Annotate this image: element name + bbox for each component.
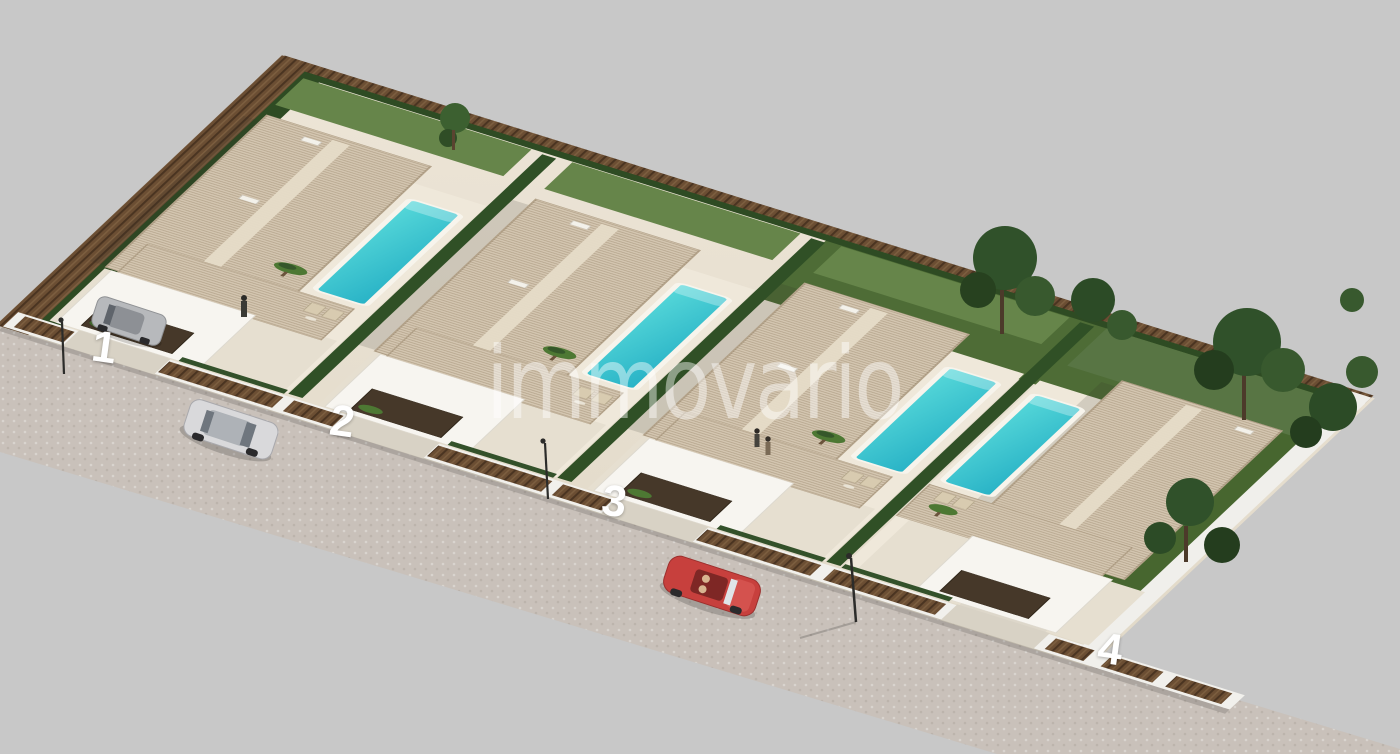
person (241, 295, 247, 317)
person (765, 436, 770, 455)
aerial-render: 1 2 3 4 immovario (0, 0, 1400, 754)
scene-canvas (0, 0, 1400, 754)
person (754, 428, 759, 447)
